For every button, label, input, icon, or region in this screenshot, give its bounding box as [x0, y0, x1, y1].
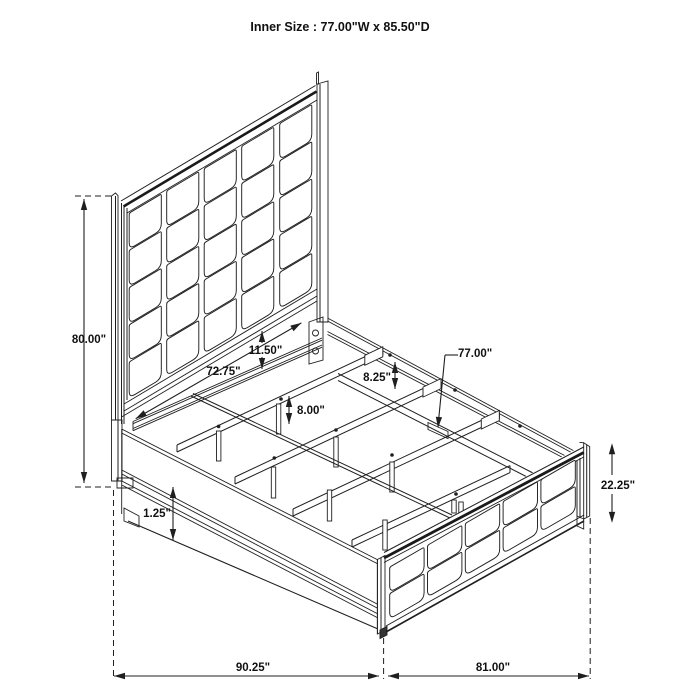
svg-text:8.25": 8.25": [363, 372, 391, 384]
svg-text:72.75": 72.75": [206, 366, 240, 378]
svg-text:80.00": 80.00": [72, 334, 106, 346]
svg-text:77.00": 77.00": [458, 348, 492, 360]
svg-text:22.25": 22.25": [601, 480, 635, 492]
svg-text:11.50": 11.50": [249, 345, 283, 357]
svg-text:81.00": 81.00": [476, 662, 510, 674]
svg-text:Inner Size : 77.00"W x 85.50"D: Inner Size : 77.00"W x 85.50"D: [250, 20, 429, 34]
svg-text:1.25": 1.25": [143, 508, 171, 520]
svg-text:8.00": 8.00": [297, 405, 325, 417]
svg-text:90.25": 90.25": [236, 662, 270, 674]
